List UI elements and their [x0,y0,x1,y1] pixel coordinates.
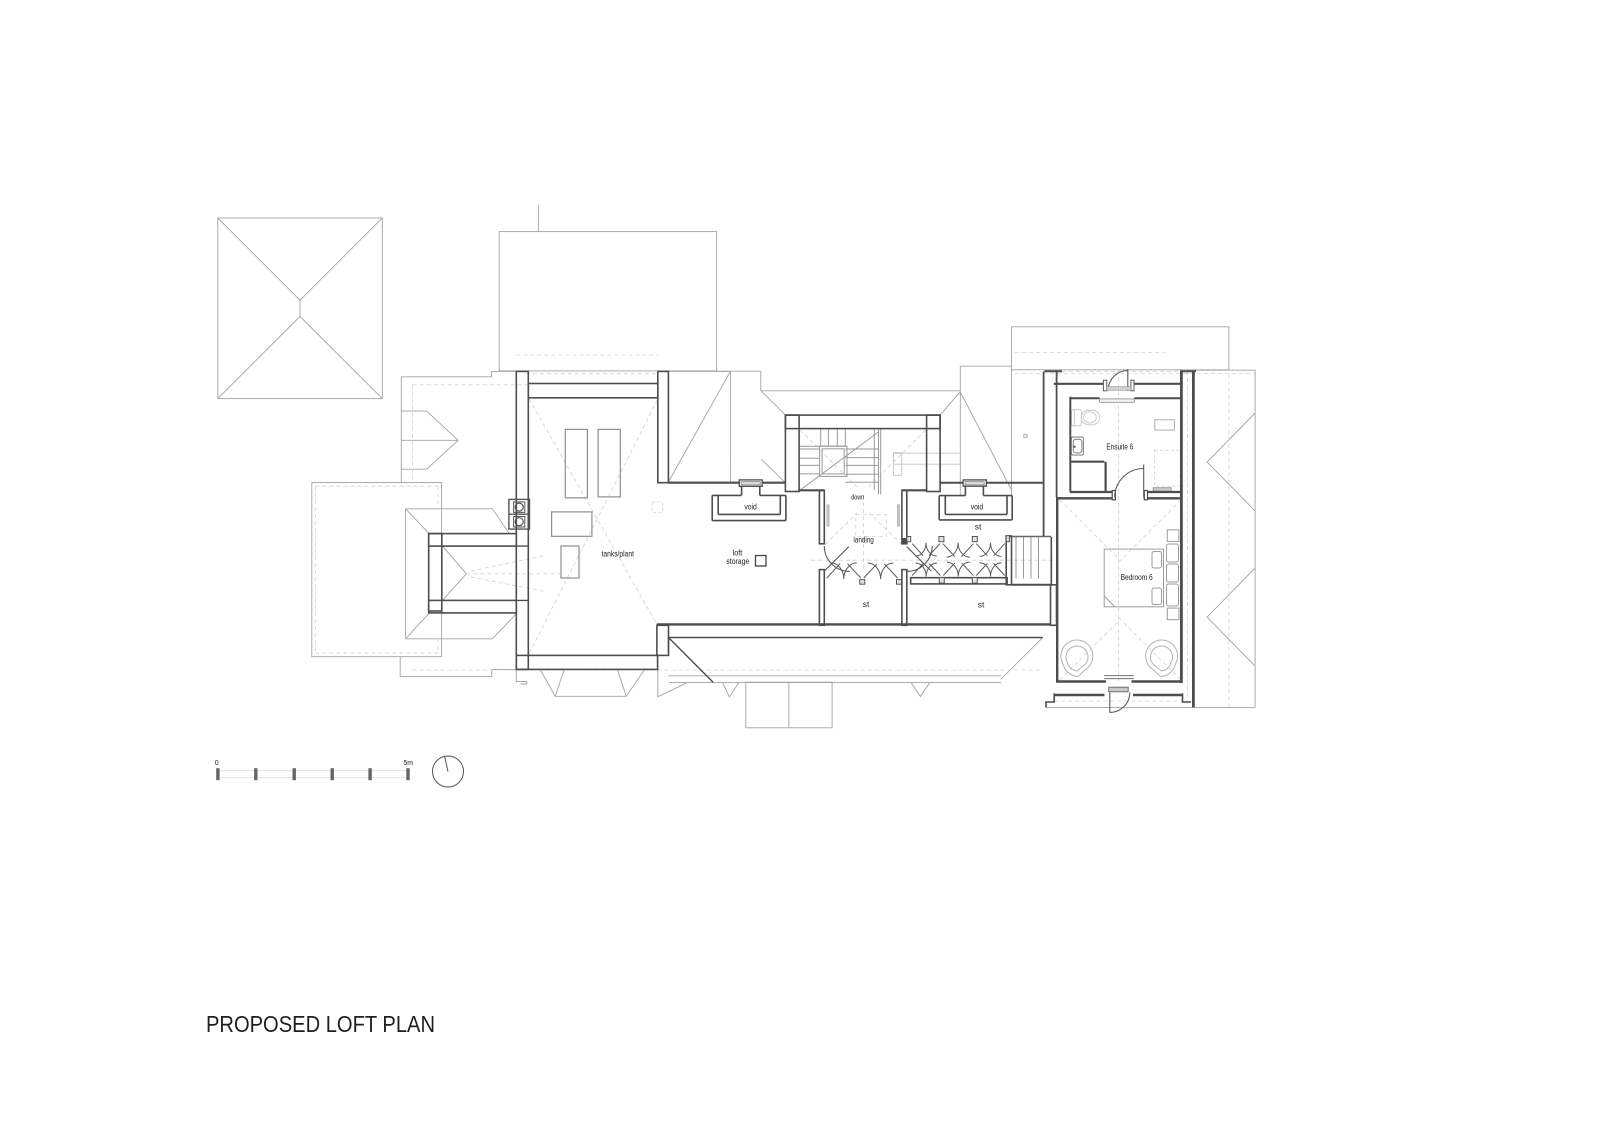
svg-text:Bedroom 6: Bedroom 6 [1121,573,1153,582]
svg-text:landing: landing [853,535,873,544]
svg-text:st: st [863,600,870,609]
svg-text:Ensuite 6: Ensuite 6 [1106,443,1133,452]
svg-text:tanks/plant: tanks/plant [602,550,635,559]
svg-text:void: void [971,502,983,511]
svg-text:st: st [978,601,985,610]
svg-text:5m: 5m [404,760,414,767]
svg-text:down: down [851,495,864,502]
svg-text:0: 0 [215,760,219,767]
svg-text:void: void [744,502,756,511]
svg-text:PROPOSED LOFT PLAN: PROPOSED LOFT PLAN [206,1011,435,1037]
svg-text:storage: storage [726,557,749,566]
svg-text:st: st [975,523,982,532]
